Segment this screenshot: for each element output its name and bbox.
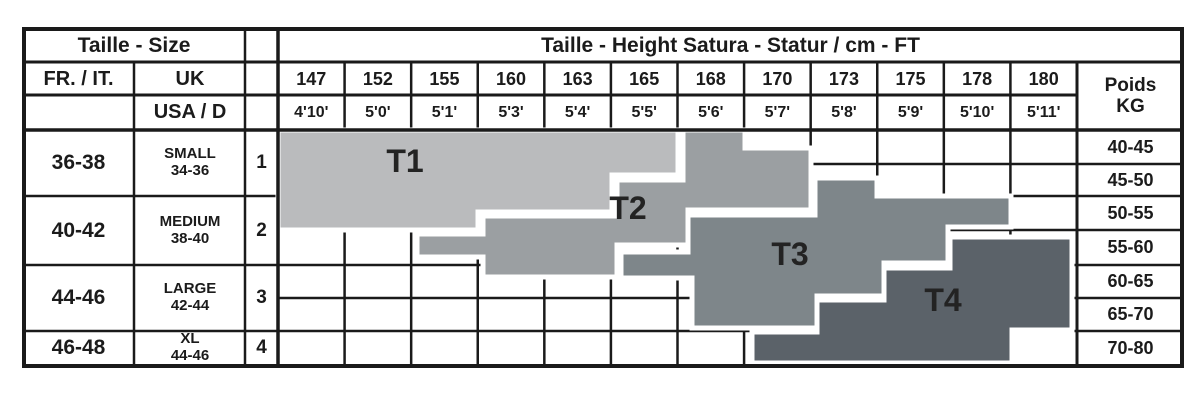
weight-kg-cell: 70-80 xyxy=(1079,332,1182,364)
size-uk-label: MEDIUM xyxy=(160,214,221,231)
height-cm-cell: 173 xyxy=(813,64,876,94)
weight-header-line1: Poids xyxy=(1105,75,1157,96)
height-ft-cell: 5'5' xyxy=(613,97,676,128)
size-usa-d-cell: 4 xyxy=(246,331,277,365)
weight-kg-cell: 50-55 xyxy=(1079,197,1182,229)
height-ft-cell: 4'10' xyxy=(280,97,343,128)
weight-kg-cell: 65-70 xyxy=(1079,299,1182,330)
height-ft-cell: 5'10' xyxy=(946,97,1009,128)
size-uk-cell: SMALL34-36 xyxy=(136,130,244,196)
height-cm-cell: 175 xyxy=(879,64,942,94)
size-chart: T1T2T3T4 Taille - Size Taille - Height S… xyxy=(0,0,1200,400)
height-cm-cell: 152 xyxy=(347,64,410,94)
weight-kg-cell: 40-45 xyxy=(1079,131,1182,163)
size-uk-range: 34-36 xyxy=(171,163,209,180)
weight-header-line2: KG xyxy=(1116,96,1145,117)
size-region-label-t1: T1 xyxy=(386,143,423,179)
height-cm-cell: 178 xyxy=(946,64,1009,94)
height-cm-cell: 163 xyxy=(546,64,609,94)
height-ft-cell: 5'7' xyxy=(746,97,809,128)
size-uk-label: LARGE xyxy=(164,281,217,298)
col-header-fr-it: FR. / IT. xyxy=(24,64,133,94)
height-cm-cell: 180 xyxy=(1012,64,1075,94)
size-region-label-t2: T2 xyxy=(609,190,646,226)
size-uk-label: SMALL xyxy=(164,146,216,163)
height-ft-cell: 5'4' xyxy=(546,97,609,128)
size-usa-d-cell: 2 xyxy=(246,196,277,265)
height-ft-cell: 5'8' xyxy=(813,97,876,128)
main-header: Taille - Height Satura - Statur / cm - F… xyxy=(280,31,1181,61)
size-uk-cell: MEDIUM38-40 xyxy=(136,196,244,265)
size-fr-it-cell: 36-38 xyxy=(24,130,133,196)
size-uk-range: 38-40 xyxy=(171,231,209,248)
size-usa-d-cell: 3 xyxy=(246,265,277,331)
weight-kg-cell: 60-65 xyxy=(1079,266,1182,297)
height-ft-cell: 5'0' xyxy=(347,97,410,128)
height-ft-cell: 5'11' xyxy=(1012,97,1075,128)
size-uk-cell: LARGE42-44 xyxy=(136,265,244,331)
size-uk-range: 44-46 xyxy=(171,348,209,365)
col-header-uk: UK xyxy=(136,64,244,94)
size-fr-it-cell: 46-48 xyxy=(24,331,133,365)
size-uk-range: 42-44 xyxy=(171,298,209,315)
size-region-label-t3: T3 xyxy=(771,236,808,272)
size-uk-label: XL xyxy=(180,331,199,348)
size-fr-it-cell: 44-46 xyxy=(24,265,133,331)
weight-kg-cell: 45-50 xyxy=(1079,165,1182,195)
height-ft-cell: 5'1' xyxy=(413,97,476,128)
height-cm-cell: 155 xyxy=(413,64,476,94)
height-cm-cell: 160 xyxy=(480,64,543,94)
height-cm-cell: 168 xyxy=(680,64,743,94)
height-ft-cell: 5'3' xyxy=(480,97,543,128)
weight-header: Poids KG xyxy=(1079,64,1182,128)
size-usa-d-cell: 1 xyxy=(246,130,277,196)
corner-header: Taille - Size xyxy=(24,31,244,61)
height-ft-cell: 5'6' xyxy=(680,97,743,128)
height-cm-cell: 165 xyxy=(613,64,676,94)
size-fr-it-cell: 40-42 xyxy=(24,196,133,265)
col-header-usa-d: USA / D xyxy=(136,97,244,128)
height-cm-cell: 147 xyxy=(280,64,343,94)
height-ft-cell: 5'9' xyxy=(879,97,942,128)
size-uk-cell: XL44-46 xyxy=(136,331,244,365)
height-cm-cell: 170 xyxy=(746,64,809,94)
size-region-label-t4: T4 xyxy=(924,282,962,318)
weight-kg-cell: 55-60 xyxy=(1079,231,1182,264)
